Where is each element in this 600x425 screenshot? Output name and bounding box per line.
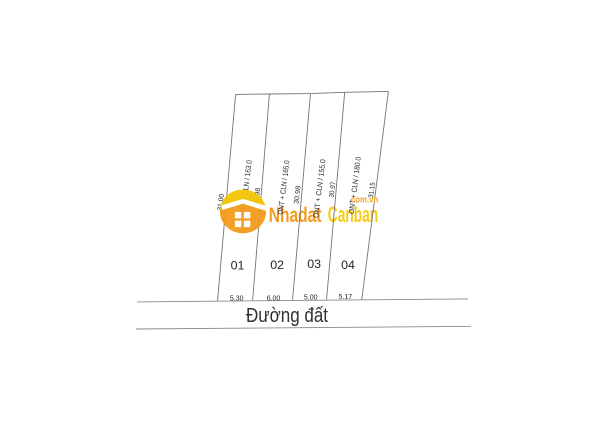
svg-text:5.17: 5.17 [338,294,352,301]
svg-text:03: 03 [307,257,321,271]
svg-text:5.00: 5.00 [304,295,318,302]
svg-text:ONT + CLN / 155.0: ONT + CLN / 155.0 [311,159,327,219]
svg-text:Đường đất: Đường đất [246,304,328,327]
svg-text:6.00: 6.00 [267,295,281,302]
svg-text:02: 02 [270,258,284,272]
svg-text:.com.vn: .com.vn [349,195,379,205]
svg-text:01: 01 [231,259,245,273]
svg-text:04: 04 [341,258,355,272]
svg-text:30.97: 30.97 [329,181,338,198]
svg-text:5.30: 5.30 [230,295,244,302]
